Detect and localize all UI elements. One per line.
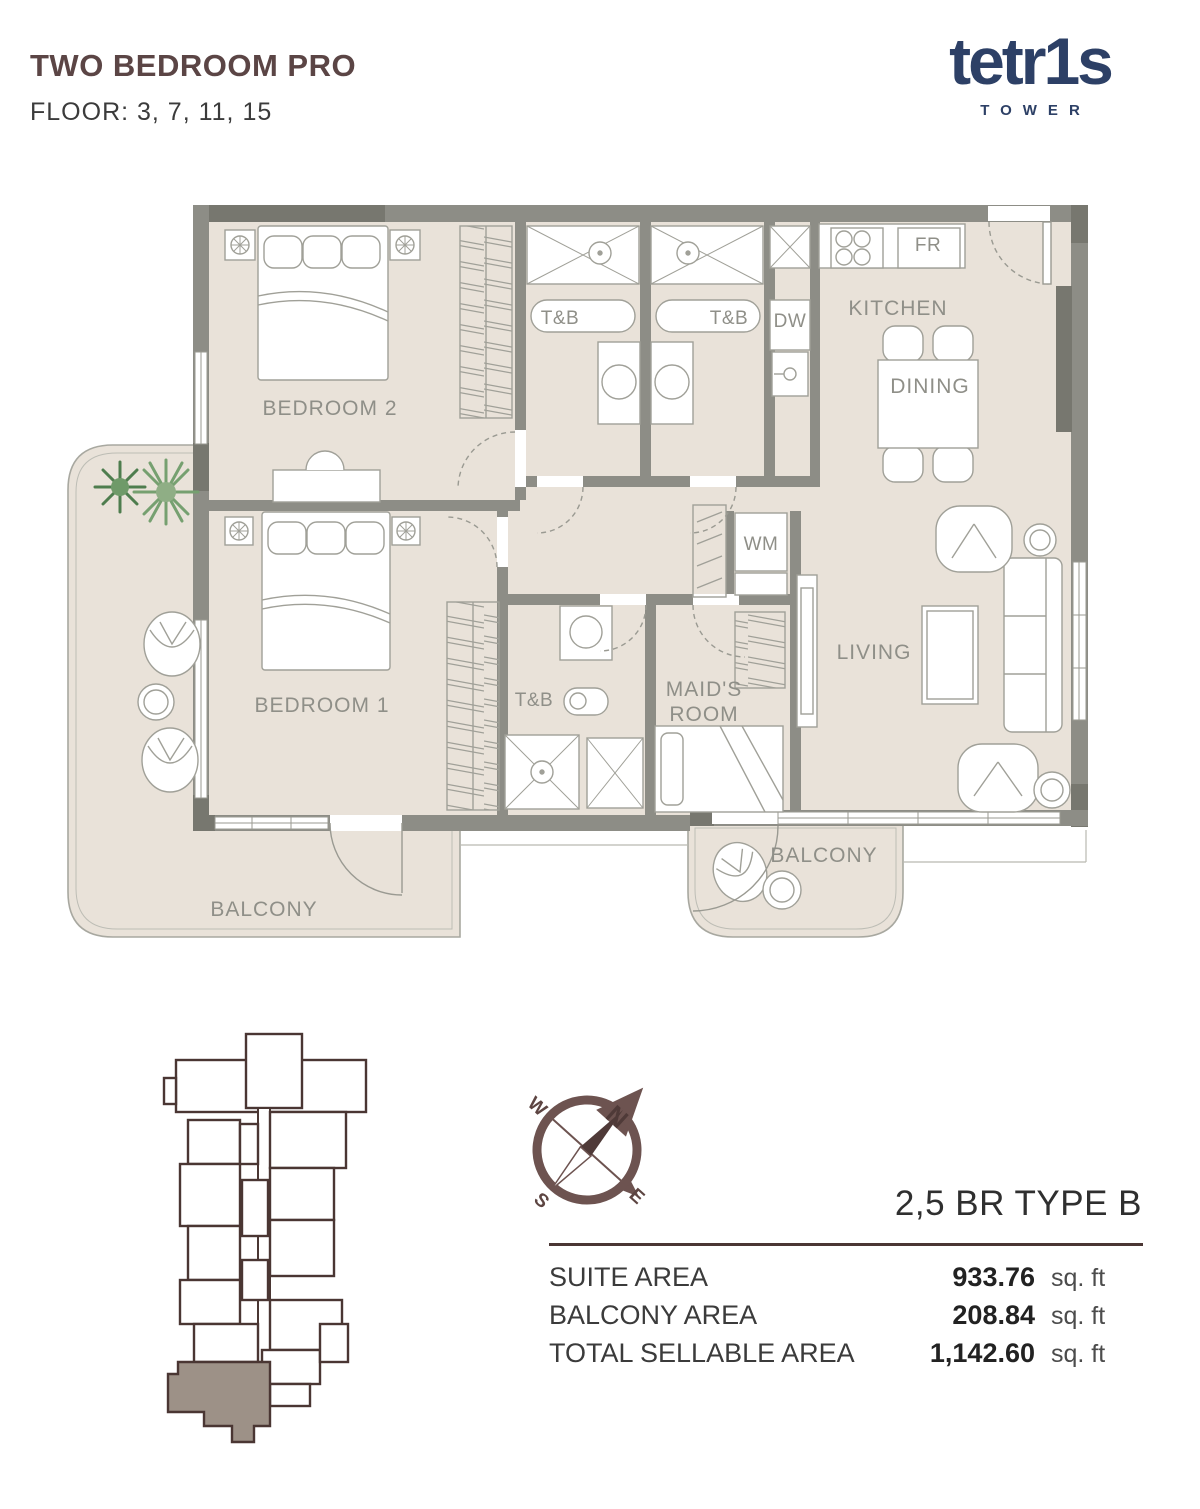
area-row-unit: sq. ft — [1035, 1264, 1143, 1293]
area-row-label: TOTAL SELLABLE AREA — [549, 1338, 905, 1369]
room-label-fr: FR — [915, 235, 941, 257]
room-label-living: LIVING — [837, 641, 912, 665]
table-row: SUITE AREA 933.76 sq. ft — [549, 1262, 1143, 1300]
room-label-wm: WM — [744, 534, 779, 556]
room-label-bedroom2: BEDROOM 2 — [262, 397, 397, 421]
room-label-dining: DINING — [890, 375, 970, 399]
area-row-unit: sq. ft — [1035, 1302, 1143, 1331]
area-row-unit: sq. ft — [1035, 1340, 1143, 1369]
compass-rose: N W E S — [478, 1037, 698, 1258]
room-label-balcony-main: BALCONY — [210, 898, 317, 922]
table-row: TOTAL SELLABLE AREA 1,142.60 sq. ft — [549, 1338, 1143, 1376]
page: TWO BEDROOM PRO FLOOR: 3, 7, 11, 15 tetr… — [0, 0, 1200, 1509]
room-label-tb-top-right: T&B — [710, 308, 748, 330]
room-label-dw: DW — [774, 311, 807, 333]
area-row-label: SUITE AREA — [549, 1262, 905, 1293]
area-row-value: 933.76 — [905, 1262, 1035, 1293]
room-label-bedroom1: BEDROOM 1 — [254, 694, 389, 718]
room-label-balcony-small: BALCONY — [770, 844, 877, 868]
area-row-label: BALCONY AREA — [549, 1300, 905, 1331]
room-label-kitchen: KITCHEN — [848, 297, 947, 321]
area-table: SUITE AREA 933.76 sq. ft BALCONY AREA 20… — [549, 1262, 1143, 1376]
divider-rule — [549, 1243, 1143, 1246]
room-label-tb-top-left: T&B — [541, 308, 579, 330]
area-row-value: 208.84 — [905, 1300, 1035, 1331]
room-label-maids-room: MAID'S ROOM — [646, 677, 762, 727]
table-row: BALCONY AREA 208.84 sq. ft — [549, 1300, 1143, 1338]
room-label-tb-lower: T&B — [515, 690, 553, 712]
unit-type-heading: 2,5 BR TYPE B — [895, 1184, 1142, 1224]
key-plan — [164, 1034, 366, 1442]
svg-text:S: S — [529, 1189, 552, 1213]
area-row-value: 1,142.60 — [905, 1338, 1035, 1369]
